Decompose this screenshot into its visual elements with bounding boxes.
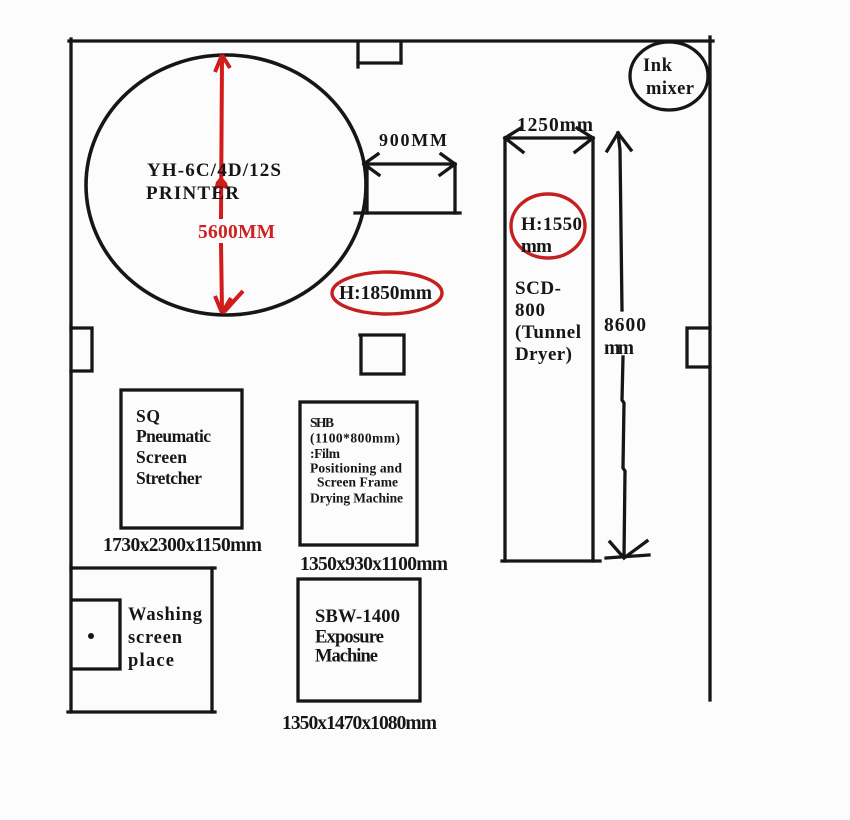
svg-text:mm: mm: [604, 338, 634, 359]
svg-text:8600: 8600: [604, 315, 646, 336]
svg-text:Positioning and: Positioning and: [310, 461, 402, 476]
svg-text:H:1550: H:1550: [521, 214, 582, 235]
svg-text:5600MM: 5600MM: [198, 222, 275, 243]
svg-text:Dryer): Dryer): [515, 344, 572, 365]
svg-text:800: 800: [515, 300, 545, 321]
svg-text:YH-6C/4D/12S: YH-6C/4D/12S: [147, 160, 281, 181]
svg-text:SHB: SHB: [310, 415, 334, 430]
svg-text:Stretcher: Stretcher: [136, 468, 202, 488]
svg-text:Pneumatic: Pneumatic: [136, 426, 211, 446]
svg-text:900MM: 900MM: [379, 130, 447, 150]
svg-text:Machine: Machine: [315, 647, 378, 667]
svg-text:(1100*800mm): (1100*800mm): [310, 431, 400, 446]
svg-text:mm: mm: [521, 236, 552, 257]
svg-text:SQ: SQ: [136, 406, 160, 426]
svg-text:1730x2300x1150mm: 1730x2300x1150mm: [103, 535, 262, 556]
svg-text:place: place: [128, 651, 174, 671]
svg-text::Film: :Film: [310, 446, 341, 461]
svg-text:SCD-: SCD-: [515, 278, 561, 299]
svg-text:Washing: Washing: [128, 605, 203, 625]
svg-text:SBW-1400: SBW-1400: [315, 607, 400, 627]
svg-text:Screen Frame: Screen Frame: [317, 475, 398, 490]
svg-text:Drying Machine: Drying Machine: [310, 491, 403, 506]
svg-text:1250mm: 1250mm: [517, 115, 593, 136]
svg-text:screen: screen: [128, 628, 183, 648]
svg-text:PRINTER: PRINTER: [146, 183, 239, 204]
svg-text:1350x1470x1080mm: 1350x1470x1080mm: [282, 713, 437, 734]
svg-text:Screen: Screen: [136, 447, 187, 467]
svg-text:H:1850mm: H:1850mm: [339, 283, 432, 304]
svg-text:1350x930x1100mm: 1350x930x1100mm: [300, 554, 448, 575]
svg-text:Exposure: Exposure: [315, 628, 384, 648]
svg-text:(Tunnel: (Tunnel: [515, 322, 581, 343]
svg-text:Ink: Ink: [643, 56, 673, 76]
svg-text:mixer: mixer: [646, 79, 694, 99]
